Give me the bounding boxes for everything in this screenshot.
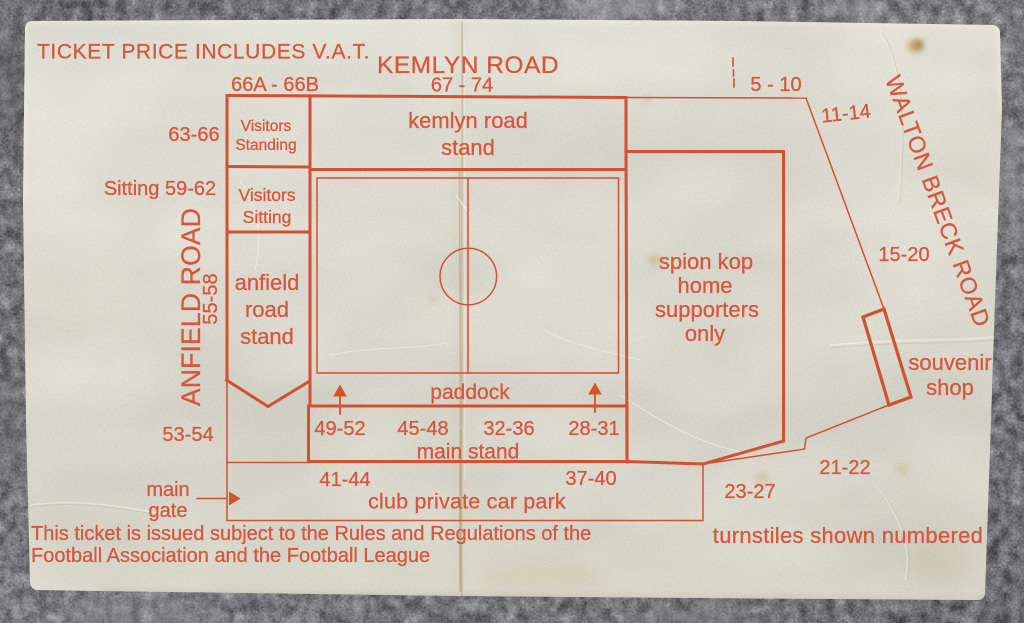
svg-text:23-27: 23-27 [724,481,775,503]
svg-text:66A - 66B: 66A - 66B [231,74,319,96]
svg-text:road: road [245,297,289,322]
svg-text:club private car park: club private car park [368,490,566,514]
svg-text:kemlyn road: kemlyn road [408,108,528,133]
svg-text:gate: gate [149,500,188,522]
svg-text:paddock: paddock [430,381,510,404]
svg-text:supporters: supporters [655,297,759,322]
svg-text:main stand: main stand [417,441,520,464]
svg-text:turnstiles shown numbered: turnstiles shown numbered [713,523,983,548]
svg-text:only: only [685,321,725,346]
svg-text:spion kop: spion kop [659,249,753,274]
svg-text:32-36: 32-36 [483,418,534,440]
svg-text:15-20: 15-20 [878,244,929,266]
svg-text:55-58: 55-58 [200,273,222,324]
svg-text:Sitting 59-62: Sitting 59-62 [104,178,216,200]
svg-text:Sitting: Sitting [243,207,292,227]
svg-text:Football Association and the F: Football Association and the Football Le… [31,545,430,567]
svg-text:28-31: 28-31 [568,418,619,440]
svg-text:63-66: 63-66 [168,124,219,146]
svg-text:main: main [146,479,189,501]
svg-text:TICKET PRICE INCLUDES V.A.T.: TICKET PRICE INCLUDES V.A.T. [37,41,370,64]
svg-text:53-54: 53-54 [162,424,213,446]
svg-text:Visitors: Visitors [241,118,292,135]
svg-text:Visitors: Visitors [238,185,295,205]
svg-text:41-44: 41-44 [319,469,370,491]
svg-text:stand: stand [441,135,495,160]
svg-text:shop: shop [926,375,974,400]
svg-text:stand: stand [240,324,294,349]
svg-text:5 - 10: 5 - 10 [750,74,801,96]
svg-text:anfield: anfield [235,270,300,295]
svg-text:souvenir: souvenir [908,350,991,375]
svg-text:45-48: 45-48 [397,418,448,440]
svg-text:21-22: 21-22 [819,457,870,479]
svg-text:home: home [677,273,732,298]
svg-text:49-52: 49-52 [314,418,365,440]
svg-text:37-40: 37-40 [565,468,616,490]
svg-text:This ticket is issued subject: This ticket is issued subject to the Rul… [31,523,591,545]
svg-text:Standing: Standing [235,137,296,154]
svg-text:67 - 74: 67 - 74 [431,75,493,97]
